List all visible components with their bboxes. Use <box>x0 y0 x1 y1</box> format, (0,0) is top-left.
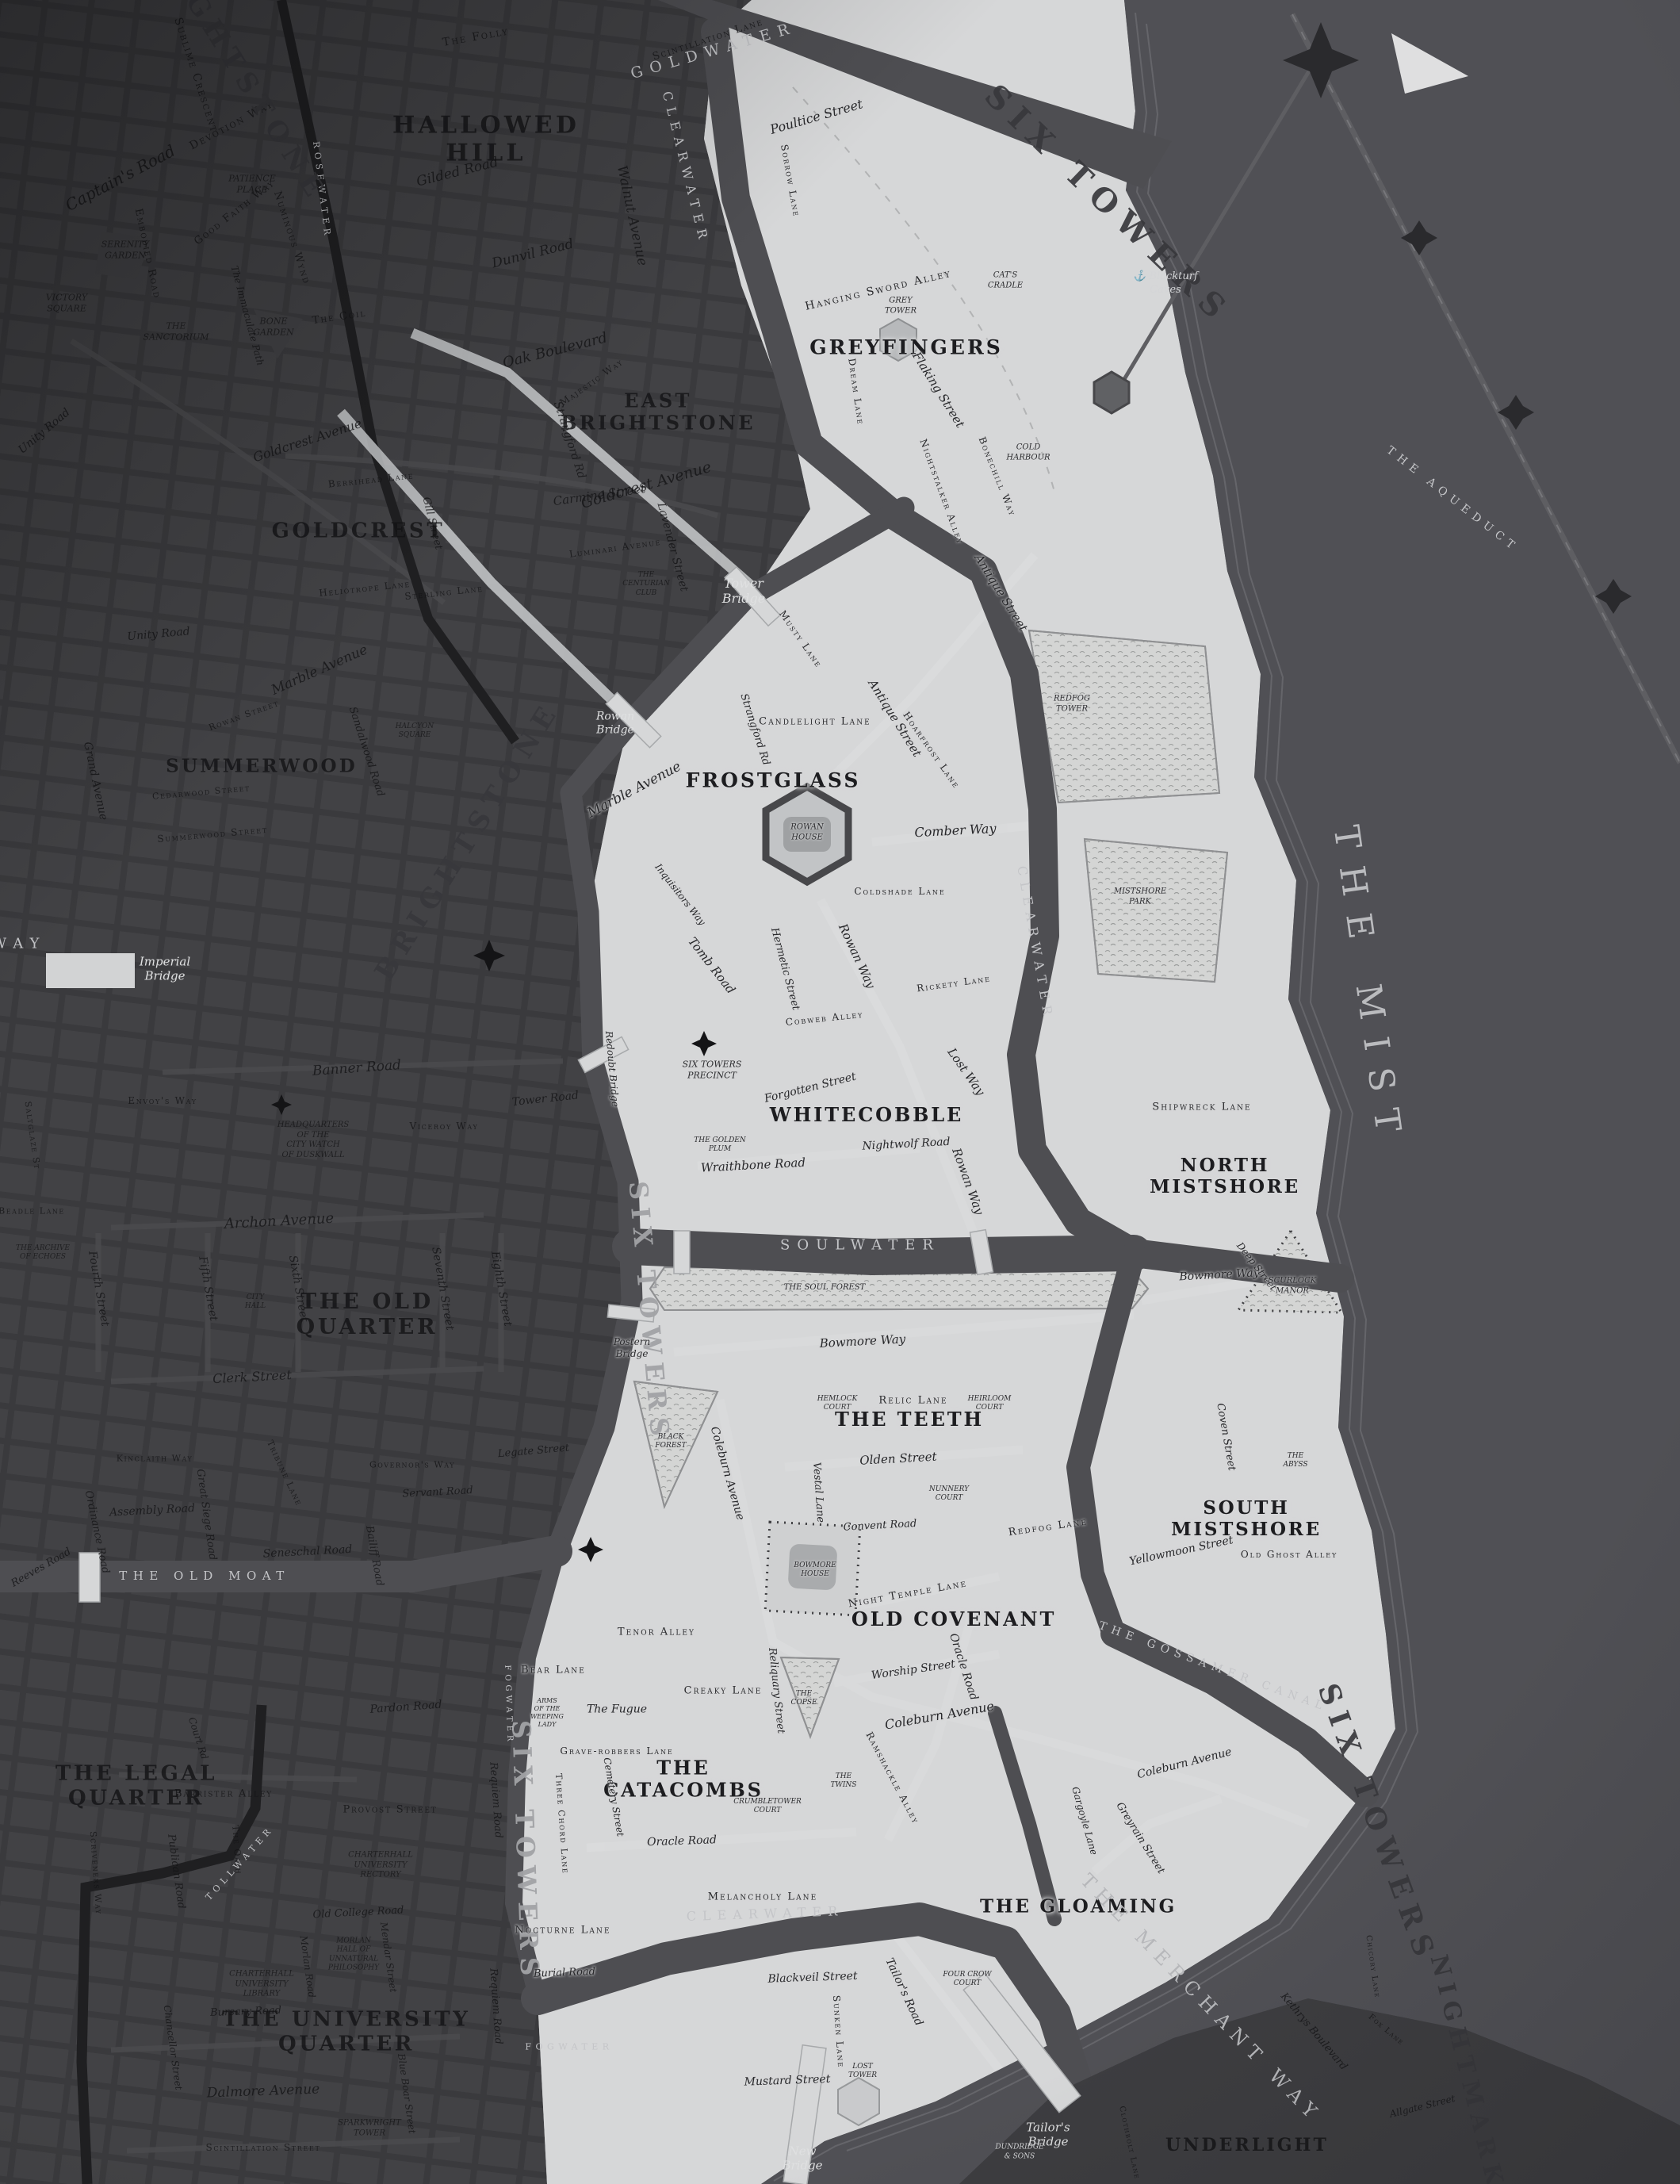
goldcrest-avenue-label: Goldcrest Avenue <box>579 458 714 512</box>
devotion-way-label: Devotion Way <box>187 98 275 153</box>
heirloom-court-label: HEIRLOOM COURT <box>968 1395 1012 1413</box>
pardon-road-label: Pardon Road <box>369 1699 442 1717</box>
creaky-lane-label: Creaky Lane <box>684 1684 763 1696</box>
chicory-lane-label: Chicory Lane <box>1364 1934 1382 1998</box>
ordinance-road-label: Ordinance Road <box>82 1489 111 1574</box>
bonechill-way-label: Bonechill Way <box>976 435 1018 518</box>
bear-lane-label: Bear Lane <box>521 1664 586 1676</box>
servant-road-label: Servant Road <box>402 1485 473 1500</box>
night-temple-lane-label: Night Temple Lane <box>848 1577 969 1611</box>
dundridge-sons-label: DUNDRIDGE & SONS <box>995 2143 1043 2161</box>
the-gossamer-canal-label: THE GOSSAMER CANAL <box>1096 1619 1329 1715</box>
musty-lane-label: Musty Lane <box>777 608 825 670</box>
reliquary-street-label: Reliquary Street <box>766 1647 787 1734</box>
kinclaith-way-label: Kinclaith Way <box>117 1454 193 1465</box>
charterhall-university-library-label: CHARTERHALL UNIVERSITY LIBRARY <box>229 1969 294 1999</box>
vestal-lane-label: Vestal Lane <box>810 1462 827 1523</box>
the-legal-quarter-label: THE LEGAL QUARTER <box>55 1761 217 1810</box>
fox-lane-label: Fox Lane <box>1366 2013 1406 2048</box>
tomb-road-label: Tomb Road <box>685 935 737 997</box>
three-chord-lane-label: Three Chord Lane <box>553 1773 570 1875</box>
the-folly-label: The Folly <box>442 25 510 50</box>
burial-road-label: Burial Road <box>534 1966 596 1980</box>
rowan-house-label: ROWAN HOUSE <box>790 823 823 843</box>
clerk-street-label: Clerk Street <box>212 1368 293 1387</box>
goldcrest-avenue-label: Goldcrest Avenue <box>251 416 364 466</box>
sterling-lane-label: Sterling Lane <box>404 583 484 602</box>
lost-way-label: Lost Way <box>944 1046 987 1099</box>
blackturf-caves-label: ⚓ Blackturf Caves <box>1133 270 1198 297</box>
charterhall-university-rectory-label: CHARTERHALL UNIVERSITY RECTORY <box>348 1850 413 1880</box>
new-bridge-label: New Bridge <box>782 2144 822 2172</box>
hoarfrost-lane-label: Hoarfrost Lane <box>901 710 962 791</box>
unity-road-label: Unity Road <box>16 406 73 457</box>
oracle-road-label: Oracle Road <box>647 1833 717 1849</box>
marble-avenue-label: Marble Avenue <box>269 642 370 698</box>
unity-road-label: Unity Road <box>127 625 191 643</box>
scriveners-way-label: Scriveners Way <box>87 1831 103 1916</box>
walnut-avenue-label: Walnut Avenue <box>614 164 650 267</box>
sandalwood-road-label: Sandalwood Road <box>346 705 386 798</box>
chancellor-street-label: Chancellor Street <box>161 2005 184 2091</box>
the-sanctorium-label: THE SANCTORIUM <box>143 320 209 343</box>
cedarwood-street-label: Cedarwood Street <box>152 784 251 803</box>
east-brightstone-label: EAST BRIGHTSTONE <box>561 390 756 435</box>
bowmore-way-label: Bowmore Way <box>1179 1266 1260 1284</box>
gargoyle-lane-label: Gargoyle Lane <box>1070 1785 1100 1856</box>
tribune-lane-label: Tribune Lane <box>264 1439 304 1508</box>
tailor-s-bridge-label: Tailor's Bridge <box>1026 2121 1070 2148</box>
sixth-street-label: Sixth Street <box>285 1255 310 1324</box>
imperial-bridge-label: Imperial Bridge <box>140 955 190 983</box>
poultice-street-label: Poultice Street <box>768 97 864 137</box>
mustard-street-label: Mustard Street <box>744 2073 830 2089</box>
viceroy-way-label: Viceroy Way <box>409 1121 478 1132</box>
brightstone-label: BRIGHTSTONE <box>136 0 334 209</box>
relic-lane-label: Relic Lane <box>878 1394 947 1406</box>
clearwater-label: CLEARWATER <box>1013 865 1055 1023</box>
the-centurian-club-label: THE CENTURIAN CLUB <box>622 571 670 598</box>
cold-harbour-label: COLD HARBOUR <box>1006 443 1050 463</box>
redfog-tower-label: REDFOG TOWER <box>1054 695 1090 715</box>
coleburn-avenue-label: Coleburn Avenue <box>1136 1745 1233 1782</box>
victory-square-label: VICTORY SQUARE <box>46 292 87 314</box>
yellowmoon-street-label: Yellowmoon Street <box>1128 1534 1234 1569</box>
embodied-road-label: Embodied Road <box>132 208 163 301</box>
flaking-street-label: Flaking Street <box>909 350 967 431</box>
patience-place-label: PATIENCE PLACE <box>228 173 276 195</box>
fogwater-label: FOGWATER <box>525 2043 613 2053</box>
comber-way-label: Comber Way <box>914 822 997 841</box>
way-label: WAY <box>0 935 46 952</box>
the-soul-forest-label: THE SOUL FOREST <box>784 1283 866 1293</box>
reeves-road-label: Reeves Road <box>9 1546 73 1590</box>
shipwreck-lane-label: Shipwreck Lane <box>1152 1101 1251 1113</box>
the-aqueduct-label: THE AQUEDUCT <box>1383 444 1521 555</box>
cobweb-alley-label: Cobweb Alley <box>785 1009 864 1028</box>
black-forest-label: BLACK FOREST <box>655 1433 686 1451</box>
the-coil-label: The Coil <box>312 308 367 328</box>
greyfingers-label: GREYFINGERS <box>809 335 1003 359</box>
serenity-garden-label: SERENITY GARDEN <box>101 239 149 261</box>
rosewater-label: ROSEWATER <box>310 141 332 240</box>
summerwood-label: SUMMERWOOD <box>166 755 358 776</box>
coldshade-lane-label: Coldshade Lane <box>854 886 945 897</box>
olden-street-label: Olden Street <box>859 1450 937 1469</box>
tower-road-label: Tower Road <box>511 1089 580 1109</box>
berrihead-lane-label: Berrihead Lane <box>327 469 415 489</box>
provost-street-label: Provost Street <box>343 1803 437 1815</box>
carmine-street-label: Carmine Street <box>553 482 647 509</box>
six-towers-label: SIX TOWERS <box>505 1720 544 1984</box>
candlelight-lane-label: Candlelight Lane <box>759 715 871 727</box>
the-mist-label: THE MIST <box>1325 823 1411 1152</box>
archon-avenue-label: Archon Avenue <box>224 1210 334 1232</box>
the-copse-label: THE COPSE <box>790 1690 817 1708</box>
map-labels: HALLOWED HILLThe FollyScintillation Lane… <box>0 0 1680 2184</box>
south-mistshore-label: SOUTH MISTSHORE <box>1171 1497 1322 1540</box>
coven-street-label: Coven Street <box>1214 1402 1238 1472</box>
allgate-street-label: Allgate Street <box>1388 2093 1456 2120</box>
hermetic-street-label: Hermetic Street <box>768 926 802 1011</box>
the-abyss-label: THE ABYSS <box>1283 1452 1307 1470</box>
six-towers-label: SIX TOWERS <box>1311 1679 1444 1968</box>
forgotten-street-label: Forgotten Street <box>763 1071 857 1106</box>
grey-tower-label: GREY TOWER <box>885 297 917 316</box>
morlan-road-label: Morlan Road <box>298 1935 318 1998</box>
blackveil-street-label: Blackveil Street <box>767 1970 858 1986</box>
nunnery-court-label: NUNNERY COURT <box>929 1485 969 1504</box>
bowmore-house-label: BOWMORE HOUSE <box>794 1561 836 1580</box>
scintillation-street-label: Scintillation Street <box>205 2142 320 2153</box>
hemlock-court-label: HEMLOCK COURT <box>817 1395 858 1413</box>
rowan-way-label: Rowan Way <box>835 921 877 990</box>
rowan-bridge-label: Rowan Bridge <box>596 710 634 736</box>
coleburn-avenue-label: Coleburn Avenue <box>707 1425 747 1522</box>
dream-lane-label: Dream Lane <box>846 358 867 426</box>
the-teeth-label: THE TEETH <box>835 1408 984 1431</box>
soulwater-label: SOULWATER <box>780 1236 940 1253</box>
grave-robbers-lane-label: Grave-robbers Lane <box>560 1745 673 1757</box>
gilded-road-label: Gilded Road <box>415 154 499 190</box>
north-mistshore-label: NORTH MISTSHORE <box>1150 1155 1300 1197</box>
arms-of-the-weeping-lady-label: ARMS OF THE WEEPING LADY <box>530 1697 564 1729</box>
nightwolf-road-label: Nightwolf Road <box>862 1136 951 1153</box>
frostglass-label: FROSTGLASS <box>686 768 861 792</box>
oracle-road-label: Oracle Road <box>947 1632 981 1703</box>
summerwood-street-label: Summerwood Street <box>157 824 268 845</box>
banner-road-label: Banner Road <box>312 1057 401 1079</box>
tenor-alley-label: Tenor Alley <box>618 1626 695 1638</box>
good-faith-way-label: Good Faith Way <box>192 178 277 248</box>
cat-s-cradle-label: CAT'S CRADLE <box>988 271 1023 291</box>
old-ghost-alley-label: Old Ghost Alley <box>1241 1549 1337 1560</box>
lost-tower-label: LOST TOWER <box>848 2063 877 2081</box>
gill-street-label: Gill Street <box>419 496 444 551</box>
blue-boar-street-label: Blue Boar Street <box>396 2053 418 2135</box>
clearwater-label: CLEARWATER <box>659 90 711 246</box>
headquarters-of-the-city-watch-of-duskwa-label: HEADQUARTERS OF THE CITY WATCH OF DUSKWA… <box>277 1121 350 1160</box>
the-catacombs-label: THE CATACOMBS <box>603 1757 763 1803</box>
fogwater-label: FOGWATER <box>502 1665 514 1745</box>
great-siege-road-label: Great Siege Road <box>193 1468 218 1561</box>
mendar-street-label: Mendar Street <box>378 1922 399 1993</box>
goldwater-label: GOLDWATER <box>629 18 798 82</box>
grand-avenue-label: Grand Avenue <box>80 741 109 822</box>
nocturne-lane-label: Nocturne Lane <box>515 1924 610 1936</box>
the-immaculate-path-label: The Immaculate Path <box>228 265 266 367</box>
seventh-street-label: Seventh Street <box>429 1246 457 1331</box>
six-towers-label: SIX TOWERS <box>977 77 1239 332</box>
dalmore-avenue-label: Dalmore Avenue <box>207 2081 320 2101</box>
redfog-lane-label: Redfog Lane <box>1008 1515 1089 1538</box>
rowan-street-label: Rowan Street <box>208 699 281 734</box>
morlan-hall-of-unnatural-philosophy-label: MORLAN HALL OF UNNATURAL PHILOSOPHY <box>328 1937 379 1973</box>
publican-road-label: Publican Road <box>165 1833 187 1910</box>
greyrain-street-label: Greyrain Street <box>1113 1800 1167 1876</box>
strangford-rd-label: Strangford Rd <box>550 400 587 481</box>
six-towers-precinct-label: SIX TOWERS PRECINCT <box>683 1059 742 1081</box>
rowan-way-label: Rowan Way <box>949 1147 986 1217</box>
sorrow-lane-label: Sorrow Lane <box>779 144 802 218</box>
coleburn-avenue-label: Coleburn Avenue <box>884 1699 996 1734</box>
the-twins-label: THE TWINS <box>831 1772 857 1791</box>
captain-s-road-label: Captain's Road <box>63 142 178 216</box>
nightmarket-label: NIGHTMARKET <box>1424 1952 1522 2184</box>
tower-bridge-label: Tower Bridge <box>722 577 765 607</box>
the-gloaming-label: THE GLOAMING <box>980 1895 1177 1917</box>
heliotrope-lane-label: Heliotrope Lane <box>319 578 411 599</box>
nightstalker-alley-label: Nightstalker Alley <box>917 438 966 546</box>
city-map: HALLOWED HILLThe FollyScintillation Lane… <box>0 0 1680 2184</box>
the-old-moat-label: THE OLD MOAT <box>119 1569 290 1584</box>
lavender-street-label: Lavender Street <box>654 501 691 593</box>
cemetery-street-label: Cemetery Street <box>601 1757 626 1837</box>
worship-street-label: Worship Street <box>871 1657 956 1682</box>
eighth-street-label: Eighth Street <box>488 1250 515 1327</box>
wraithbone-road-label: Wraithbone Road <box>701 1156 806 1176</box>
scurlock-manor-label: SCURLOCK MANOR <box>1269 1277 1316 1297</box>
majestic-way-label: Majestic Way <box>557 356 625 408</box>
rickety-lane-label: Rickety Lane <box>916 972 991 994</box>
underlight-label: UNDERLIGHT <box>1165 2136 1329 2156</box>
goldcrest-label: GOLDCREST <box>272 519 446 544</box>
fifth-street-label: Fifth Street <box>196 1255 220 1322</box>
tollwater-label: TOLLWATER <box>205 1825 277 1903</box>
postern-bridge-label: Postern Bridge <box>614 1336 650 1360</box>
antique-street-label: Antique Street <box>971 552 1030 634</box>
barrister-alley-label: Barrister Alley <box>174 1787 273 1799</box>
legate-street-label: Legate Street <box>497 1442 569 1460</box>
clothbolt-lane-label: Clothbolt Lane <box>1116 2105 1141 2181</box>
bursary-road-label: Bursary Road <box>210 2005 281 2019</box>
requiem-road-label: Requiem Road <box>487 1968 504 2044</box>
sublime-crescent-label: Sublime Crescent <box>171 16 221 135</box>
hallowed-hill-label: HALLOWED HILL <box>392 112 580 168</box>
bone-garden-label: BONE GARDEN <box>253 316 294 338</box>
beadle-lane-label: Beadle Lane <box>0 1207 65 1217</box>
fourth-street-label: Fourth Street <box>86 1250 112 1328</box>
bailiff-road-label: Bailiff Road <box>363 1525 385 1587</box>
old-covenant-label: OLD COVENANT <box>851 1608 1056 1630</box>
the-oath-label: The Oath <box>229 1825 243 1875</box>
saltglaze-st-label: Saltglaze St <box>22 1101 42 1171</box>
convent-road-label: Convent Road <box>843 1518 917 1534</box>
antique-street-label: Antique Street <box>865 677 924 760</box>
kethrys-boulevard-label: Kethrys Boulevard <box>1278 1991 1349 2073</box>
four-crow-court-label: FOUR CROW COURT <box>943 1971 991 1989</box>
halcyon-square-label: HALCYON SQUARE <box>396 722 434 741</box>
seneschal-road-label: Seneschal Road <box>262 1543 352 1561</box>
strangford-rd-label: Strangford Rd <box>737 692 772 767</box>
numinous-wynd-label: Numinous Wynd <box>271 190 313 286</box>
assembly-road-label: Assembly Road <box>109 1502 196 1519</box>
dunvil-road-label: Dunvil Road <box>490 236 575 272</box>
brightstone-label: BRIGHTSTONE <box>369 695 567 986</box>
scintillation-lane-label: Scintillation Lane <box>651 16 765 63</box>
envoy-s-way-label: Envoy's Way <box>128 1095 197 1106</box>
marble-avenue-label: Marble Avenue <box>585 758 684 821</box>
the-fugue-label: The Fugue <box>587 1703 647 1717</box>
six-towers-label: SIX TOWERS <box>622 1180 675 1445</box>
sparkwright-tower-label: SPARKWRIGHT TOWER <box>338 2119 401 2139</box>
court-rd-label: Court Rd <box>186 1716 211 1761</box>
the-university-quarter-label: THE UNIVERSITY QUARTER <box>223 2007 471 2056</box>
redoubt-bridge-label: Redoubt Bridge <box>603 1031 621 1108</box>
mistshore-park-label: MISTSHORE PARK <box>1114 887 1166 907</box>
crumbletower-court-label: CRUMBLETOWER COURT <box>733 1798 802 1816</box>
deep-street-label: Deep Street <box>1234 1240 1279 1293</box>
bowmore-way-label: Bowmore Way <box>819 1332 905 1351</box>
inquisitors-way-label: Inquisitors Way <box>652 861 707 927</box>
requiem-road-label: Requiem Road <box>487 1761 504 1838</box>
luminari-avenue-label: Luminari Avenue <box>568 536 662 560</box>
the-old-quarter-label: THE OLD QUARTER <box>297 1289 438 1340</box>
the-golden-plum-label: THE GOLDEN PLUM <box>694 1136 746 1155</box>
city-hall-label: CITY HALL <box>245 1293 266 1312</box>
ramshackle-alley-label: Ramshackle Alley <box>863 1730 921 1826</box>
whitecobble-label: WHITECOBBLE <box>770 1104 963 1126</box>
tailor-s-road-label: Tailor's Road <box>882 1956 925 2029</box>
the-archive-of-echoes-label: THE ARCHIVE OF ECHOES <box>16 1244 70 1263</box>
hanging-sword-alley-label: Hanging Sword Alley <box>804 267 953 314</box>
governor-s-way-label: Governor's Way <box>369 1461 455 1471</box>
oak-boulevard-label: Oak Boulevard <box>501 329 609 371</box>
old-college-road-label: Old College Road <box>312 1904 404 1921</box>
sunken-lane-label: Sunken Lane <box>831 1994 848 2068</box>
clearwater-label: CLEARWATER <box>686 1904 844 1925</box>
melancholy-lane-label: Melancholy Lane <box>708 1891 818 1902</box>
the-merchant-way-label: THE MERCHANT WAY <box>1076 1869 1326 2127</box>
